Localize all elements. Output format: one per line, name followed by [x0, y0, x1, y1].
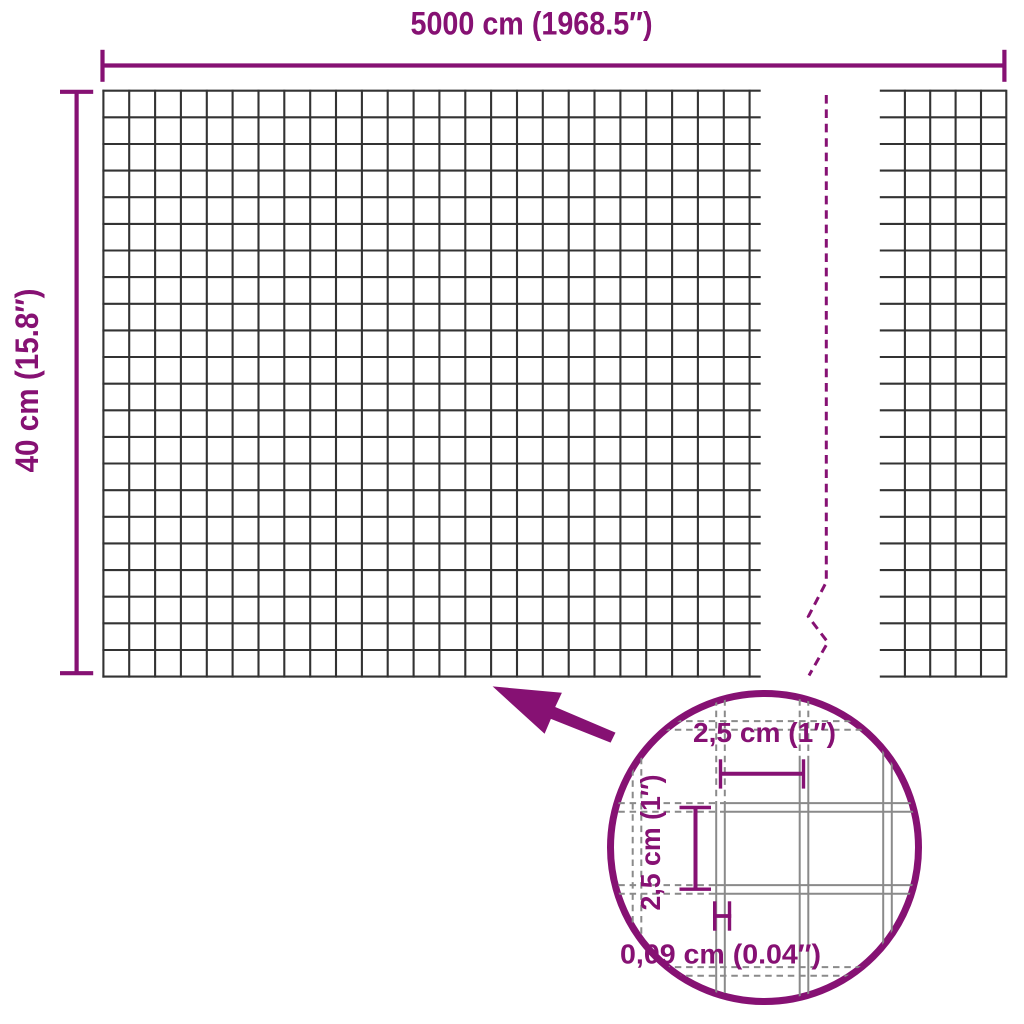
svg-text:40 cm (15.8″): 40 cm (15.8″) [9, 289, 45, 473]
svg-text:5000 cm (1968.5″): 5000 cm (1968.5″) [411, 6, 653, 42]
svg-text:2,5 cm (1″): 2,5 cm (1″) [635, 775, 666, 911]
svg-text:0,09 cm (0.04″): 0,09 cm (0.04″) [620, 939, 821, 970]
svg-text:2,5 cm (1″): 2,5 cm (1″) [693, 717, 836, 748]
